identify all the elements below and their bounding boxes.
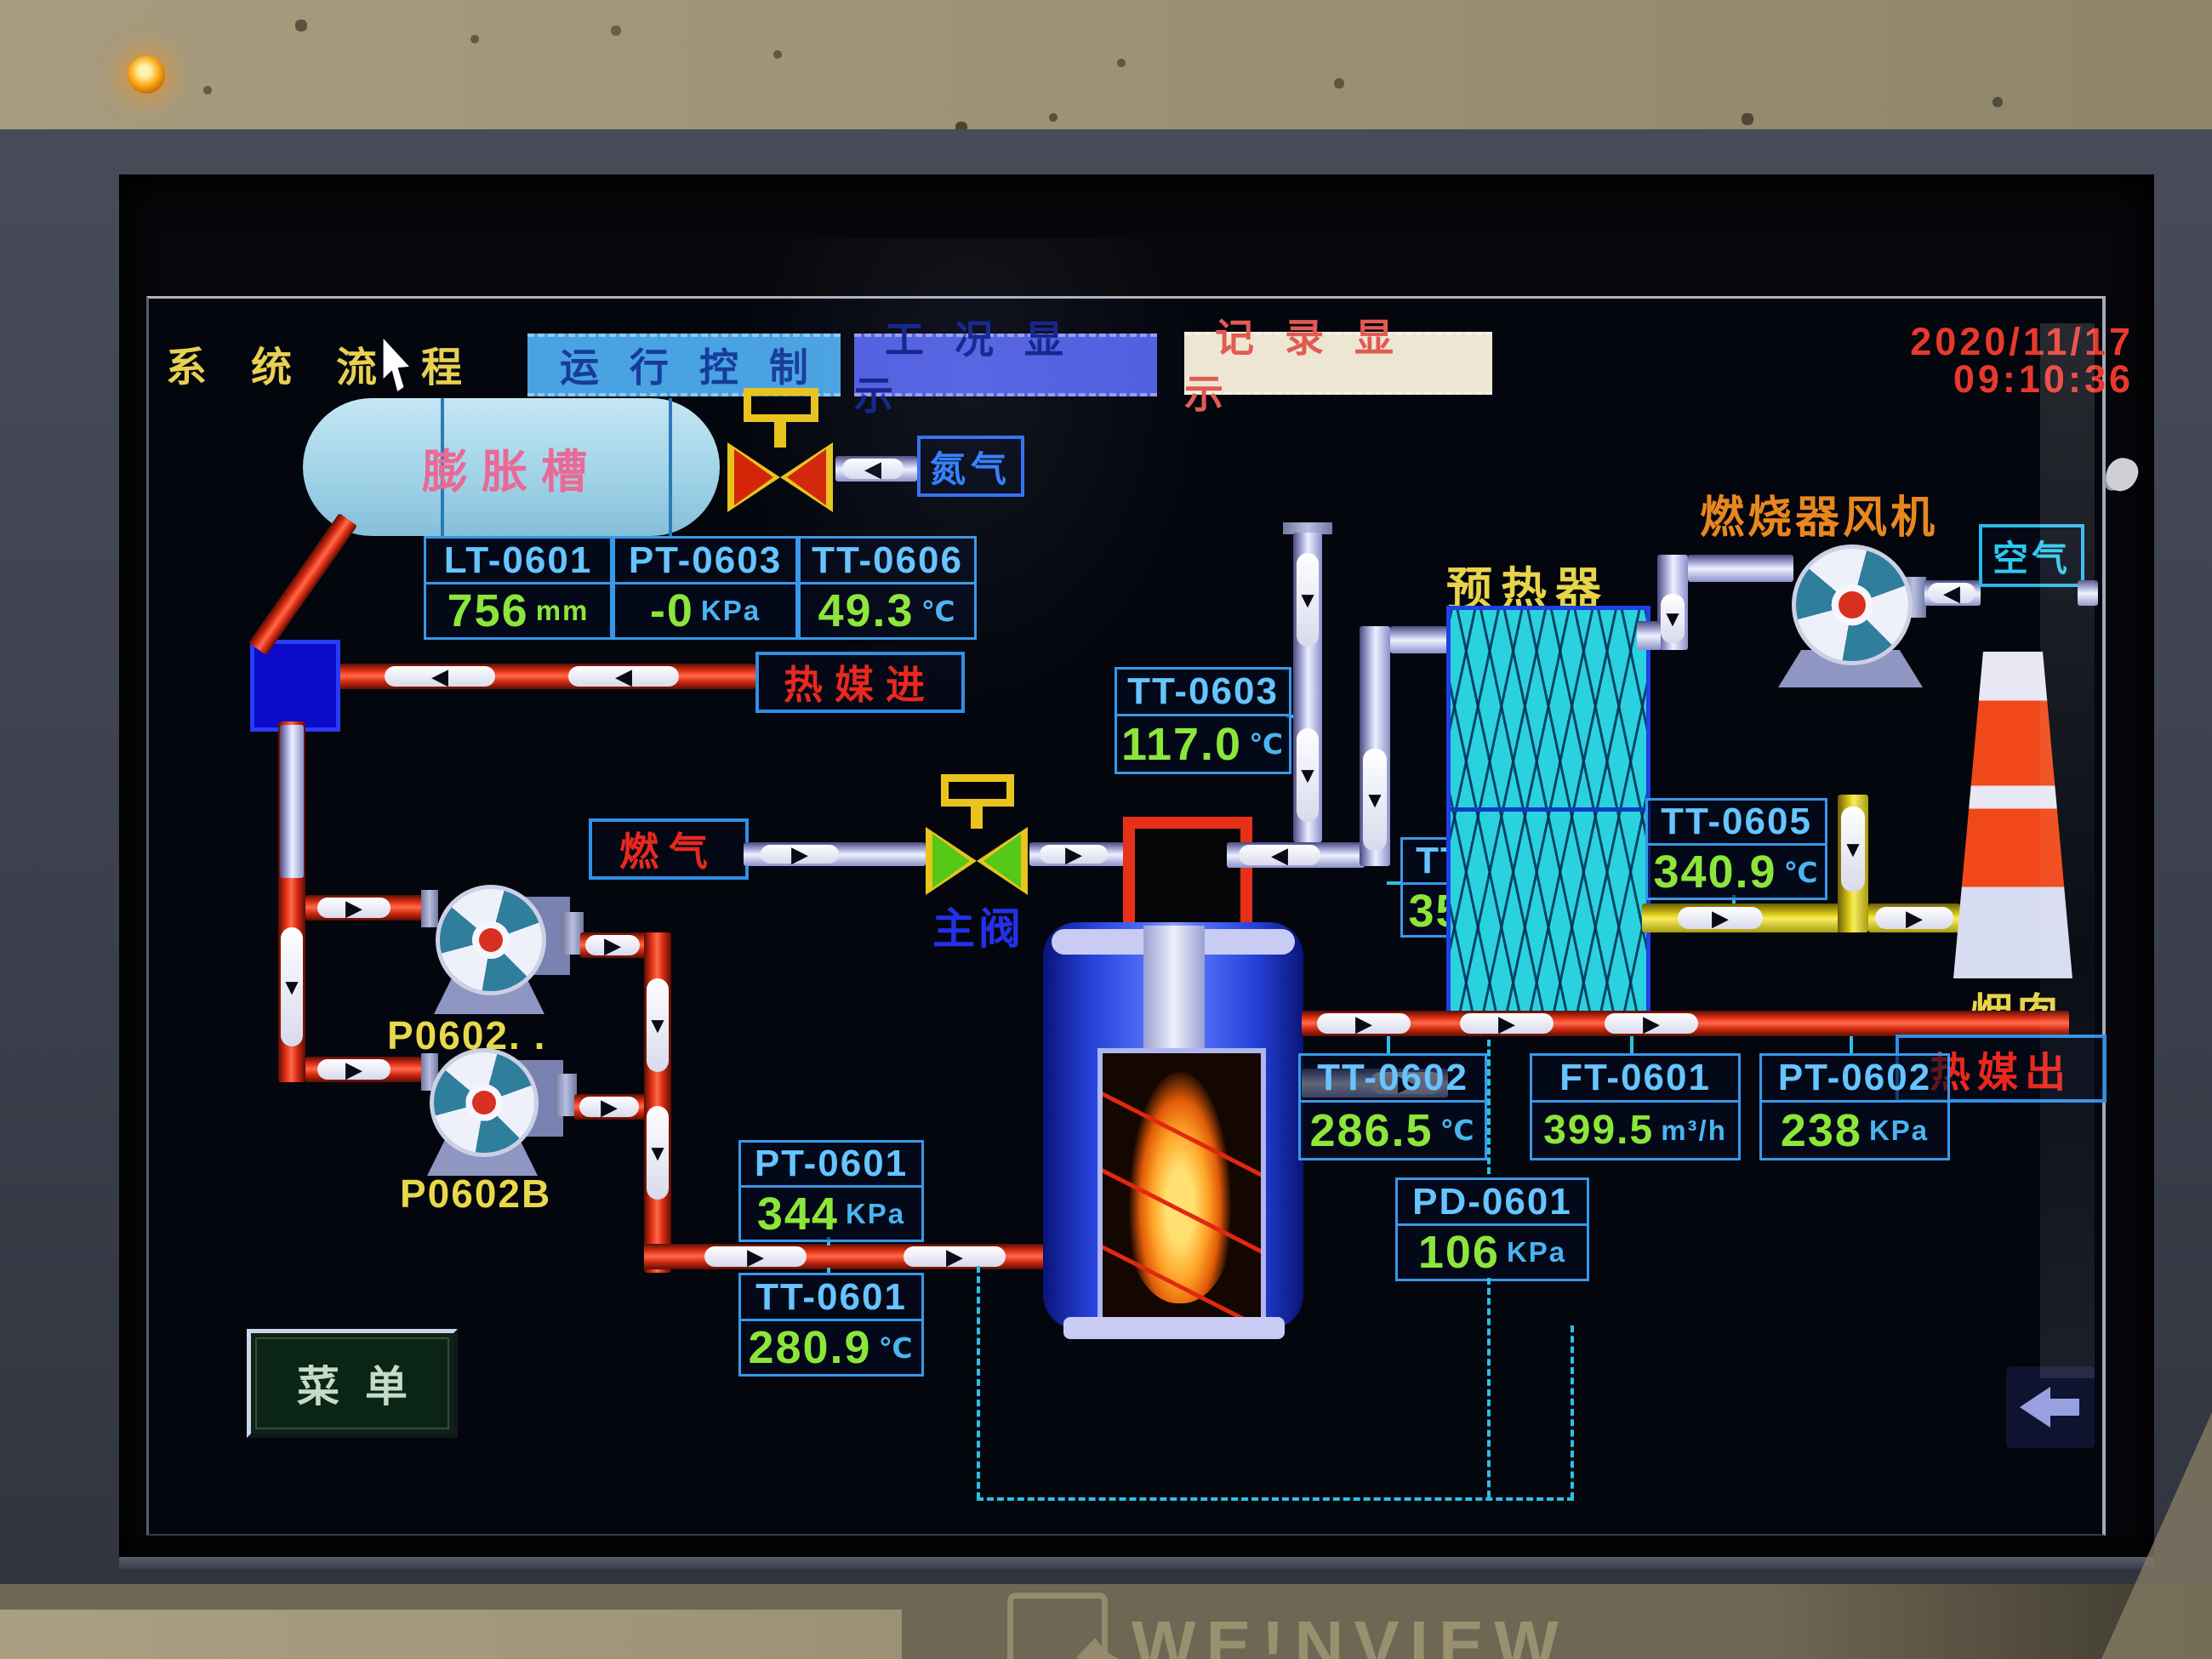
dashed-line xyxy=(1571,1325,1574,1499)
dashed-line xyxy=(1487,1040,1491,1174)
bezel-bottom-left xyxy=(0,1610,902,1659)
dust-specks xyxy=(0,0,3,3)
gauge-unit: ℃ xyxy=(879,1331,915,1365)
connector xyxy=(1387,881,1400,885)
main-valve-actuator xyxy=(941,774,1014,807)
gauge-pt-0602: PT-0602 238KPa xyxy=(1759,1053,1950,1160)
preheater-divider xyxy=(1451,807,1646,812)
nitrogen-label: 氮气 xyxy=(917,436,1024,497)
gauge-tt-0602: TT-0602 286.5℃ xyxy=(1298,1053,1487,1160)
gauge-label: TT-0606 xyxy=(801,539,974,584)
weinview-logo-icon xyxy=(1007,1593,1108,1659)
tab-record-display[interactable]: 记录显示 xyxy=(1184,332,1492,395)
gauge-label: TT-0603 xyxy=(1117,670,1289,716)
flow-arrow: ▶ xyxy=(1317,1013,1411,1034)
fuel-gas-label: 燃气 xyxy=(589,818,749,880)
back-arrow-icon xyxy=(2020,1387,2050,1428)
tab-condition-display[interactable]: 工况显示 xyxy=(854,334,1157,396)
gauge-pt-0601: PT-0601 344KPa xyxy=(738,1140,924,1242)
n2-valve-actuator xyxy=(744,388,818,422)
gauge-ft-0601: FT-0601 399.5m³/h xyxy=(1530,1053,1741,1160)
expansion-tank: 膨胀槽 xyxy=(303,398,720,536)
flow-arrow: ▶ xyxy=(585,935,640,955)
connector xyxy=(1387,1036,1390,1053)
burner-fan-label: 燃烧器风机 xyxy=(1700,482,1972,545)
pipe-suction-upper xyxy=(280,725,304,878)
hmi-panel-photo: 系统流程 运行控制 工况显示 记录显示 2020/11/17 09:10:36 … xyxy=(0,0,2212,1659)
flow-arrow: ▶ xyxy=(317,898,391,918)
flow-arrow: ▶ xyxy=(317,1059,391,1080)
gauge-unit: KPa xyxy=(1869,1115,1929,1147)
dashed-line xyxy=(977,1266,980,1499)
menu-button[interactable]: 菜单 xyxy=(247,1329,458,1438)
gauge-unit: KPa xyxy=(1507,1236,1566,1268)
n2-valve-icon xyxy=(727,442,780,512)
pump-b-label: P0602B xyxy=(400,1171,604,1217)
gauge-value: 280.9 xyxy=(748,1321,871,1374)
gauge-label: PT-0603 xyxy=(615,539,795,584)
flow-arrow: ▶ xyxy=(1460,1013,1554,1034)
wall xyxy=(0,0,2212,129)
power-led xyxy=(128,56,165,94)
flow-arrow: ▼ xyxy=(1297,553,1319,647)
gauge-pt-0603: PT-0603 -0KPa xyxy=(613,536,798,640)
gauge-value: 49.3 xyxy=(818,584,914,637)
heat-medium-in-label: 热媒进 xyxy=(755,652,965,713)
connector xyxy=(1850,1036,1853,1053)
gauge-value: 756 xyxy=(448,584,529,637)
gauge-value: 106 xyxy=(1418,1226,1500,1279)
flow-arrow: ◀ xyxy=(842,459,904,479)
gauge-pd-0601: PD-0601 106KPa xyxy=(1395,1177,1589,1281)
gauge-tt-0606: TT-0606 49.3℃ xyxy=(798,536,977,640)
main-valve-icon xyxy=(926,827,977,895)
gauge-label: FT-0601 xyxy=(1532,1056,1738,1103)
gauge-value: 344 xyxy=(757,1188,839,1240)
gauge-value: 399.5 xyxy=(1543,1107,1654,1154)
heater-window xyxy=(1097,1048,1266,1329)
gauge-unit: ℃ xyxy=(921,595,957,628)
main-valve-stem xyxy=(971,803,983,829)
flow-arrow: ▶ xyxy=(579,1097,639,1117)
gauge-value: 117.0 xyxy=(1121,718,1242,771)
heater-bottom-band xyxy=(1063,1317,1285,1339)
gauge-label: TT-0601 xyxy=(741,1275,921,1321)
gauge-tt-0603: TT-0603 117.0℃ xyxy=(1115,667,1291,774)
tab-operation-control[interactable]: 运行控制 xyxy=(527,334,841,396)
bezel-edge xyxy=(119,1557,2154,1569)
flow-arrow: ▼ xyxy=(1841,807,1865,892)
heater-stack-column xyxy=(1143,926,1205,1053)
connector xyxy=(1630,1036,1633,1053)
gauge-value: -0 xyxy=(650,584,694,637)
pipe-fan-discharge xyxy=(1688,555,1793,582)
n2-valve-stem xyxy=(774,419,786,448)
pipe-preheater-air-in xyxy=(1637,621,1661,650)
gauge-value: 238 xyxy=(1781,1104,1862,1157)
gauge-unit: mm xyxy=(536,595,590,627)
main-valve-label: 主阀 xyxy=(932,895,1043,956)
flow-arrow: ◀ xyxy=(385,666,495,687)
tank-label: 膨胀槽 xyxy=(303,398,720,536)
datetime: 2020/11/17 09:10:36 xyxy=(1821,323,2134,398)
gauge-unit: ℃ xyxy=(1440,1114,1476,1147)
weinview-logo-text: WE!NVIEW xyxy=(1132,1606,1569,1659)
gauge-label: TT-0605 xyxy=(1648,801,1825,846)
n2-valve-icon xyxy=(780,442,833,512)
main-valve-icon xyxy=(977,827,1028,895)
pipe-air-intake xyxy=(2078,580,2098,606)
flow-arrow: ▼ xyxy=(647,1106,669,1200)
flow-arrow: ▼ xyxy=(1661,594,1685,643)
flow-arrow: ▼ xyxy=(1363,749,1387,851)
gauge-value: 286.5 xyxy=(1309,1104,1433,1157)
flow-arrow: ◀ xyxy=(1239,845,1320,865)
gauge-unit: KPa xyxy=(846,1198,905,1230)
flow-arrow: ▶ xyxy=(904,1246,1006,1267)
air-label: 空气 xyxy=(1979,524,2084,587)
time: 09:10:36 xyxy=(1821,361,2134,398)
preheater-block xyxy=(1446,606,1650,1018)
flow-arrow: ▶ xyxy=(761,845,839,864)
flow-arrow: ▼ xyxy=(281,927,303,1046)
flow-arrow: ▶ xyxy=(1678,907,1763,929)
pipe-preheater-air-out xyxy=(1390,626,1450,653)
gauge-unit: ℃ xyxy=(1249,727,1285,761)
gauge-label: PT-0601 xyxy=(741,1143,921,1188)
gauge-unit: KPa xyxy=(701,595,761,627)
gauge-tt-0605: TT-0605 340.9℃ xyxy=(1645,798,1827,900)
flow-arrow: ◀ xyxy=(568,666,679,687)
dashed-line xyxy=(977,1497,1574,1501)
back-button[interactable] xyxy=(2006,1366,2095,1448)
gauge-label: LT-0601 xyxy=(426,539,610,584)
flow-arrow: ▶ xyxy=(1605,1013,1698,1034)
date: 2020/11/17 xyxy=(1821,323,2134,361)
flow-arrow: ◀ xyxy=(1928,583,1975,603)
flow-arrow: ▶ xyxy=(1040,845,1108,864)
gauge-label: PD-0601 xyxy=(1398,1180,1587,1226)
flow-arrow: ▶ xyxy=(704,1246,807,1267)
gauge-tt-0601: TT-0601 280.9℃ xyxy=(738,1273,924,1377)
pump-flange xyxy=(421,890,438,927)
pump-a-icon xyxy=(436,885,546,995)
dashed-line xyxy=(1487,1278,1491,1497)
gauge-unit: ℃ xyxy=(1784,856,1820,889)
pump-b-icon xyxy=(430,1048,539,1157)
gauge-unit: m³/h xyxy=(1661,1115,1727,1147)
flow-arrow: ▼ xyxy=(647,978,669,1072)
tab-system-flow[interactable]: 系统流程 xyxy=(166,335,515,391)
flow-arrow: ▶ xyxy=(1875,907,1953,929)
burner-fan-icon xyxy=(1792,544,1913,665)
gauge-label: PT-0602 xyxy=(1762,1056,1947,1103)
gauge-value: 340.9 xyxy=(1653,846,1776,898)
gauge-label: TT-0602 xyxy=(1301,1056,1485,1103)
gauge-lt-0601: LT-0601 756mm xyxy=(424,536,613,640)
back-arrow-icon xyxy=(2047,1399,2079,1416)
flow-arrow: ▼ xyxy=(1297,728,1319,822)
